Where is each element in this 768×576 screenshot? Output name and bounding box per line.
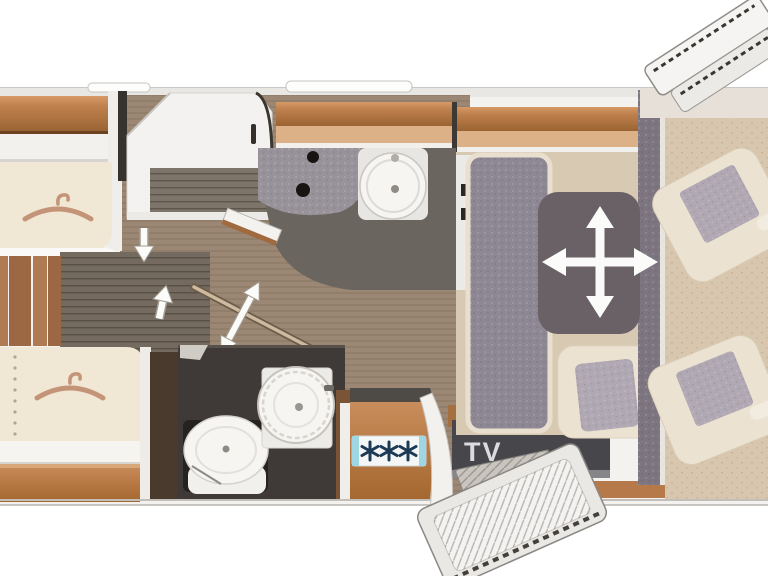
dinette-table (538, 192, 658, 334)
step-plank (9, 256, 31, 346)
overhead-cabinet (0, 96, 120, 134)
shower-drain (296, 183, 310, 197)
floorplan-image: TV (0, 0, 768, 576)
roof-window (286, 81, 412, 92)
dinette-bench (468, 155, 550, 431)
rear-bed-top (0, 162, 112, 250)
step-plank (0, 256, 8, 346)
faucet (391, 154, 399, 162)
kitchen-hob (352, 436, 426, 466)
washbasin (358, 148, 428, 220)
toilet-room-basin (258, 367, 334, 448)
rear-bed-bottom (0, 347, 143, 443)
roof-window (88, 83, 150, 92)
shower-door-handle (251, 124, 256, 144)
toilet (183, 416, 268, 494)
step-plank (48, 256, 61, 346)
shower-drain (307, 151, 319, 163)
step-plank (33, 256, 47, 346)
cab (638, 88, 768, 500)
overhead-cabinet (276, 102, 642, 156)
toilet-room (178, 345, 350, 500)
bed-drawer (0, 464, 140, 502)
faucet (324, 385, 334, 391)
wardrobe-wall (150, 352, 180, 500)
floorplan-svg: TV (0, 0, 768, 576)
bedroom-wall (118, 91, 127, 181)
